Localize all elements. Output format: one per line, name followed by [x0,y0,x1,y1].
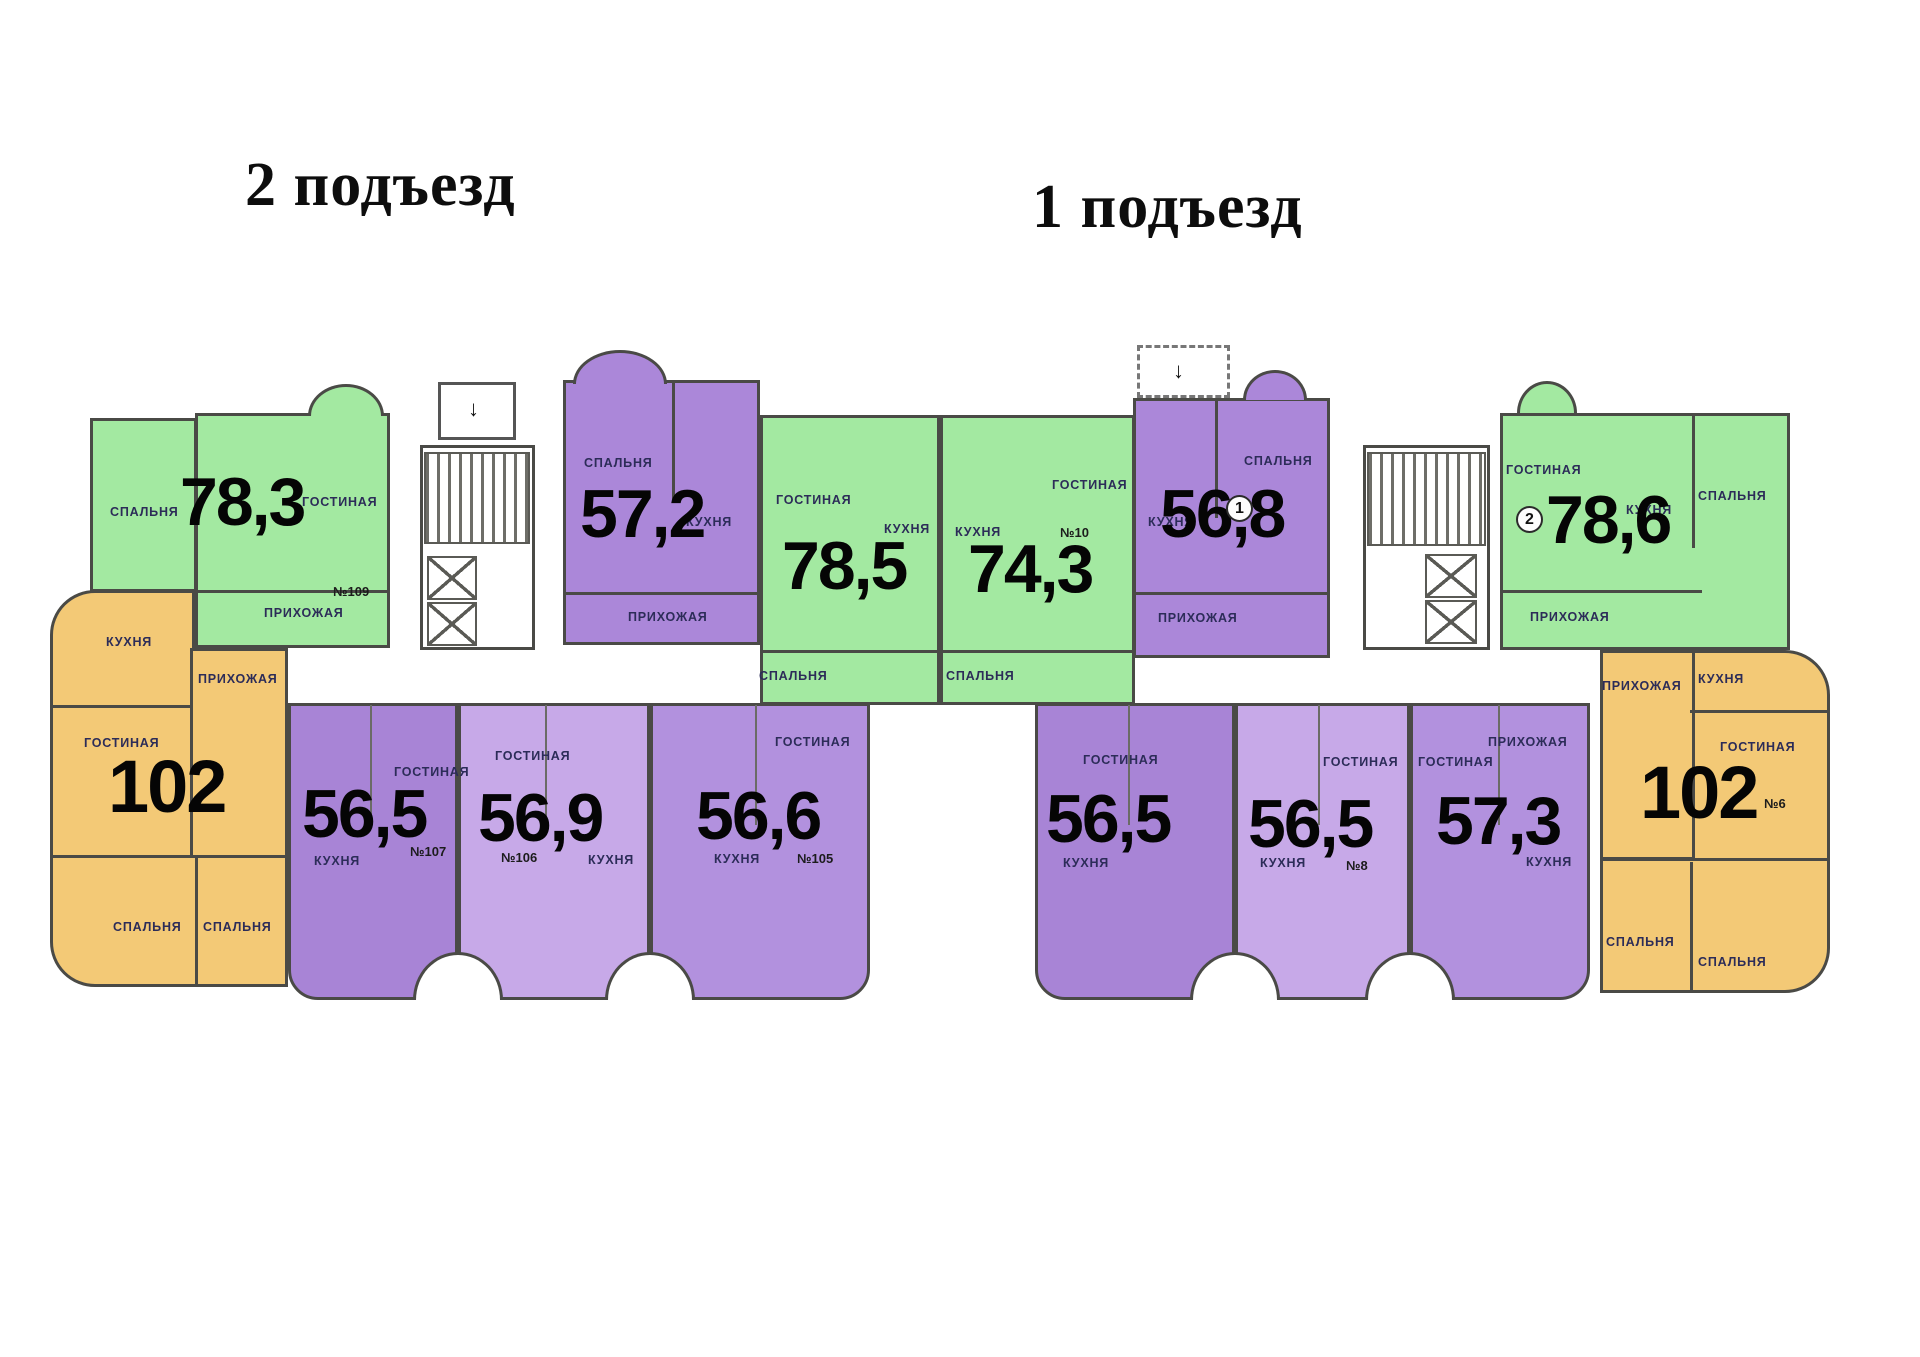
area-label-78-6: 78,6 [1546,486,1670,554]
room-label-hallway: ПРИХОЖАЯ [198,673,278,686]
interior-wall [1690,710,1830,713]
interior-wall [762,650,938,653]
room-label-living: ГОСТИНАЯ [776,494,851,507]
room-label-living: ГОСТИНАЯ [775,736,850,749]
room-label-hallway: ПРИХОЖАЯ [1602,680,1682,693]
bay-window-arch [308,384,384,416]
unit-mark-circle: 1 [1226,495,1253,522]
room-label-bedroom: СПАЛЬНЯ [1606,936,1675,949]
area-label-78-3: 78,3 [180,468,304,536]
area-label-56-5-left: 56,5 [302,780,426,848]
room-label-living: ГОСТИНАЯ [1323,756,1398,769]
room-label-bedroom: СПАЛЬНЯ [946,670,1015,683]
area-label-56-8: 56,8 [1160,480,1284,548]
room-label-living: ГОСТИНАЯ [1506,464,1581,477]
room-label-living: ГОСТИНАЯ [495,750,570,763]
area-label-57-2: 57,2 [580,480,704,548]
area-label-56-5-r1: 56,5 [1046,785,1170,853]
area-label-102-left: 102 [108,750,225,824]
stairs-left-icon [424,452,530,544]
room-label-living: ГОСТИНАЯ [302,496,377,509]
bay-window-arch [1517,381,1577,413]
interior-wall [1502,590,1702,593]
area-label-57-3: 57,3 [1436,787,1560,855]
room-label-hallway: ПРИХОЖАЯ [1530,611,1610,624]
room-label-bedroom: СПАЛЬНЯ [584,457,653,470]
room-label-living: ГОСТИНАЯ [1083,754,1158,767]
room-label-bedroom: СПАЛЬНЯ [110,506,179,519]
interior-wall [565,592,758,595]
room-label-bedroom: СПАЛЬНЯ [1698,490,1767,503]
apartment-number: №109 [333,585,369,598]
room-label-kitchen: КУХНЯ [1063,857,1109,870]
room-label-living: ГОСТИНАЯ [1418,756,1493,769]
elevator-shaft-icon [1425,554,1477,598]
interior-wall [50,705,193,708]
area-label-74-3: 74,3 [968,535,1092,603]
area-label-56-5-r2: 56,5 [1248,790,1372,858]
room-label-hallway: ПРИХОЖАЯ [1158,612,1238,625]
room-label-bedroom: СПАЛЬНЯ [113,921,182,934]
elevator-shaft-icon [427,602,477,646]
room-label-kitchen: КУХНЯ [314,855,360,868]
entrance-2-title: 2 подъезд [245,150,516,221]
interior-wall [942,650,1133,653]
area-label-56-9: 56,9 [478,784,602,852]
room-label-bedroom: СПАЛЬНЯ [759,670,828,683]
apartment-number: №6 [1764,797,1786,810]
elevator-shaft-icon [427,556,477,600]
room-label-hallway: ПРИХОЖАЯ [628,611,708,624]
room-label-kitchen: КУХНЯ [714,853,760,866]
room-label-bedroom: СПАЛЬНЯ [203,921,272,934]
area-label-78-5: 78,5 [782,532,906,600]
room-label-bedroom: СПАЛЬНЯ [1244,455,1313,468]
interior-wall [195,858,198,985]
room-label-bedroom: СПАЛЬНЯ [1698,956,1767,969]
entrance-arrow-icon: ↓ [1173,360,1184,382]
interior-wall [1135,592,1328,595]
unit-mark-circle: 2 [1516,506,1543,533]
elevator-shaft-icon [1425,600,1477,644]
room-label-living: ГОСТИНАЯ [1052,479,1127,492]
stairs-right-icon [1367,452,1486,546]
interior-wall [1692,415,1695,548]
entrance-1-title: 1 подъезд [1032,172,1303,243]
apartment-102-right-bedroom-wing [1600,858,1830,993]
room-label-hallway: ПРИХОЖАЯ [264,607,344,620]
room-label-kitchen: КУХНЯ [106,636,152,649]
room-label-kitchen: КУХНЯ [1698,673,1744,686]
entrance-arrow-icon: ↓ [468,398,479,420]
area-label-56-6: 56,6 [696,782,820,850]
floor-plan: 2 подъезд 1 подъезд ↓ ↓ [0,0,1920,1357]
area-label-102-right: 102 [1640,756,1757,830]
bay-window-arch [1243,370,1307,400]
room-label-hallway: ПРИХОЖАЯ [1488,736,1568,749]
bay-window-arch [573,350,667,384]
interior-wall [1690,862,1693,991]
